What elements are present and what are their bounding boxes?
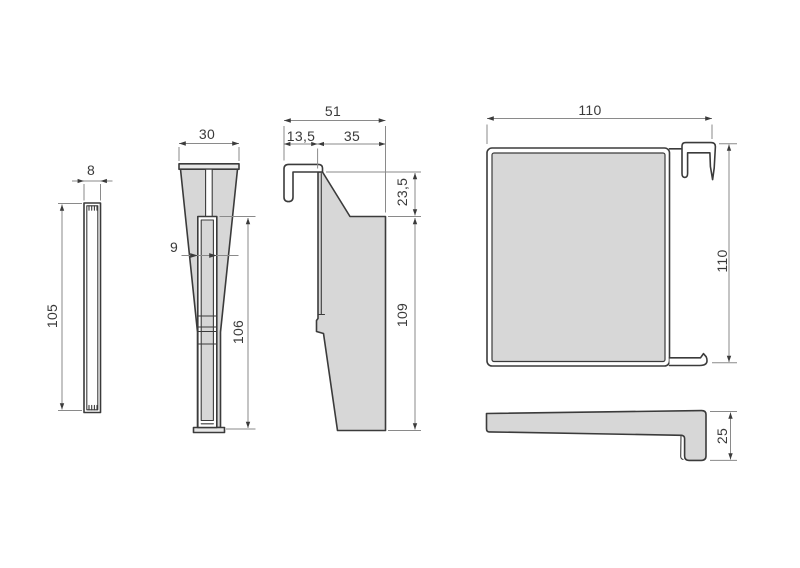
technical-drawing-page: 8 105 30 9 106 51 13,5 35 23,5 109 110 1…	[0, 0, 800, 568]
dim-label-plate-width: 110	[578, 103, 601, 117]
dim-label-hook-width: 13,5	[287, 129, 315, 143]
view-flat-strip	[58, 179, 113, 413]
dim-label-plate-height: 110	[715, 249, 729, 272]
dim-label-hook-body-height: 109	[395, 303, 409, 327]
dim-label-leg-inner-height: 106	[231, 320, 245, 344]
dim-label-bracket-leg-height: 25	[715, 428, 729, 444]
view-hook-bracket	[284, 118, 421, 430]
dim-label-leg-top-width: 30	[199, 127, 215, 141]
dim-label-hook-body-width: 35	[344, 129, 360, 143]
view-back-plate	[487, 116, 737, 366]
dim-label-leg-inner-width: 9	[170, 240, 178, 254]
dim-label-hook-height: 23,5	[395, 178, 409, 206]
dim-label-strip-width: 8	[87, 163, 95, 177]
dim-label-hook-overall-width: 51	[325, 104, 341, 118]
view-bottom-bracket	[487, 411, 738, 461]
view-tapered-leg	[179, 141, 256, 432]
drawing-linework	[0, 0, 800, 568]
dim-label-strip-height: 105	[45, 304, 59, 328]
